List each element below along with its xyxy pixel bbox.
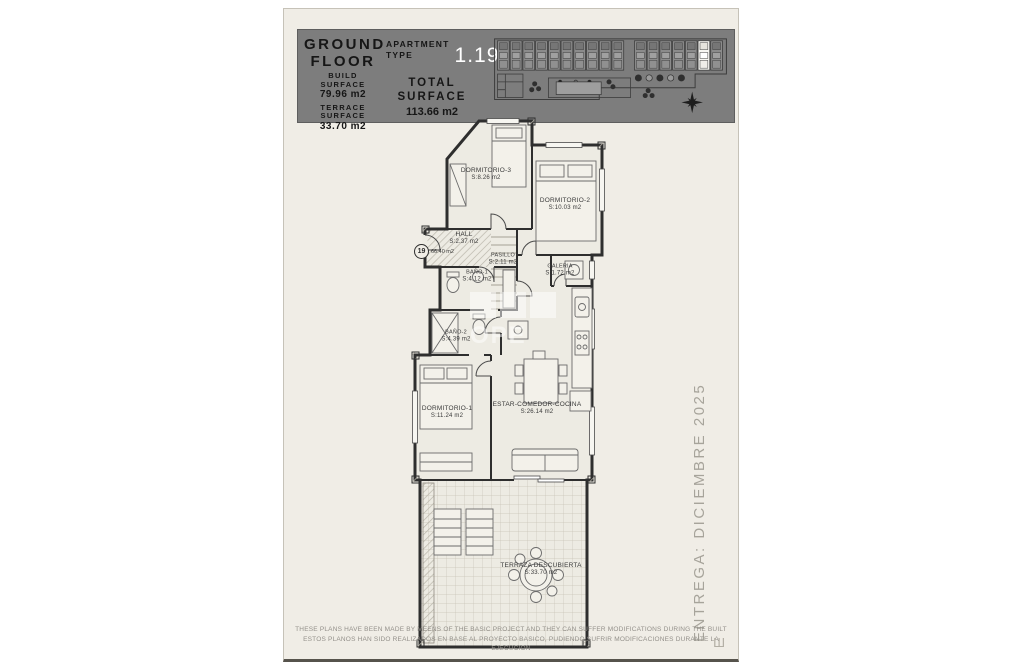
developer-logo-icon: Ш xyxy=(713,635,725,650)
room-label-dormitorio-1: DORMITORIO-1S:11.24 m2 xyxy=(422,405,472,421)
room-label-bano-1: BAÑO-1S:4.12 m2 xyxy=(462,270,491,285)
watermark-block xyxy=(500,292,526,318)
room-label-pasillo: PASILLOS:2.11 m2 xyxy=(489,253,518,268)
disclaimer: THESE PLANS HAVE BEEN MADE BY MEENS OF T… xyxy=(284,625,738,654)
delivery-date-note: ENTREGA: DICIEMBRE 2025 xyxy=(691,390,708,642)
room-label-dormitorio-3: DORMITORIO-3S:8.26 m2 xyxy=(461,167,511,183)
watermark: OPE xyxy=(470,292,590,372)
room-label-bano-2: BAÑO-2S:4.39 m2 xyxy=(441,330,470,345)
room-label-terraza-descubierta: TERRAZA DESCUBIERTAS:33.70 m2 xyxy=(500,562,581,578)
terrace-planter xyxy=(423,483,434,643)
watermark-text: OPE xyxy=(470,322,590,350)
disclaimer-line-es: ESTOS PLANOS HAN SIDO REALIZADOS EN BASE… xyxy=(284,635,738,655)
watermark-block xyxy=(530,292,556,318)
unit-number-badge: 19 xyxy=(414,244,429,259)
watermark-block xyxy=(470,292,496,318)
room-label-dormitorio-2: DORMITORIO-2S:10.03 m2 xyxy=(540,197,590,213)
useful-surface-note: 66.40 m2 xyxy=(431,249,454,255)
room-label-estar-comedor-cocina: ESTAR-COMEDOR-COCINAS:26.14 m2 xyxy=(493,401,582,417)
plan-sheet: GROUND FLOOR BUILD SURFACE 79.96 m2 TERR… xyxy=(283,8,739,662)
room-label-hall: HALLS:2.37 m2 xyxy=(449,231,478,247)
room-label-galeria: GALERIAS:1.72 m2 xyxy=(545,264,574,279)
page-canvas: GROUND FLOOR BUILD SURFACE 79.96 m2 TERR… xyxy=(0,0,1020,669)
disclaimer-line-en: THESE PLANS HAVE BEEN MADE BY MEENS OF T… xyxy=(284,625,738,635)
